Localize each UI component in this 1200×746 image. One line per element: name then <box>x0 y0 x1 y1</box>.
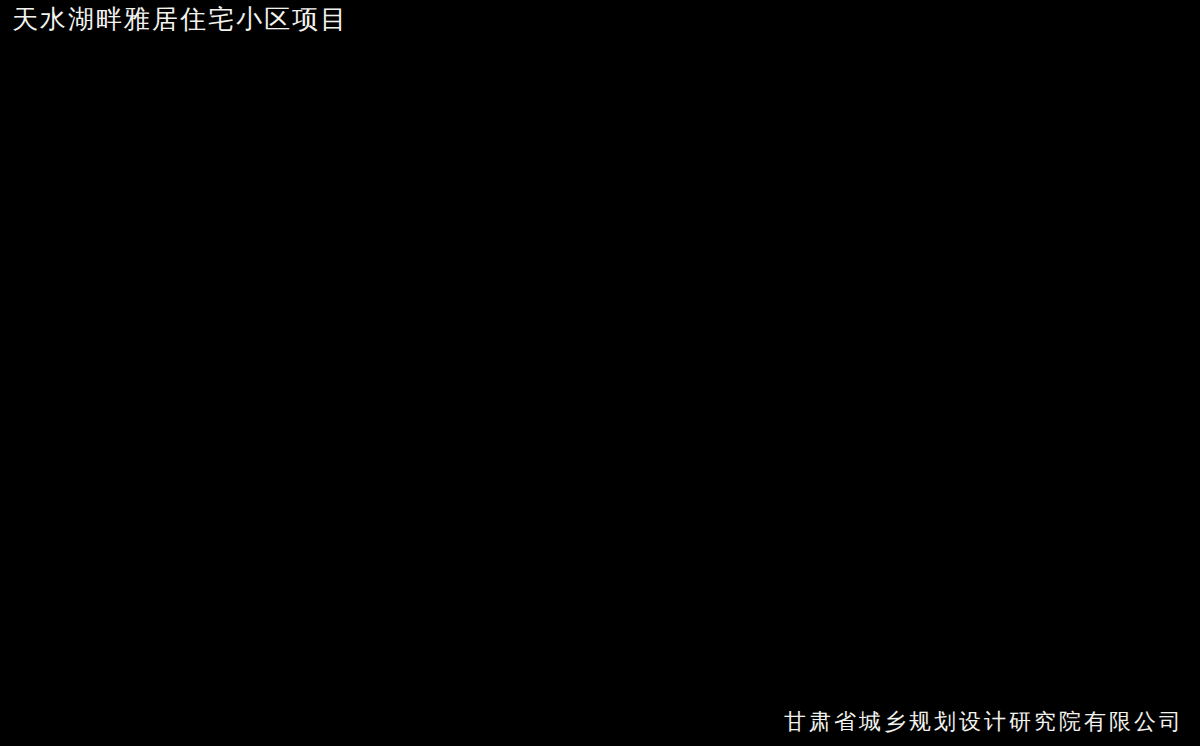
aerial-rendering <box>0 0 1200 746</box>
project-poster: 天水湖畔雅居住宅小区项目 甘肃省城乡规划设计研究院有限公司 <box>0 0 1200 746</box>
design-institute-name: 甘肃省城乡规划设计研究院有限公司 <box>0 702 1200 742</box>
project-title: 天水湖畔雅居住宅小区项目 <box>0 0 1200 38</box>
header-bar: 天水湖畔雅居住宅小区项目 <box>0 0 1200 38</box>
footer-bar: 甘肃省城乡规划设计研究院有限公司 <box>0 702 1200 746</box>
